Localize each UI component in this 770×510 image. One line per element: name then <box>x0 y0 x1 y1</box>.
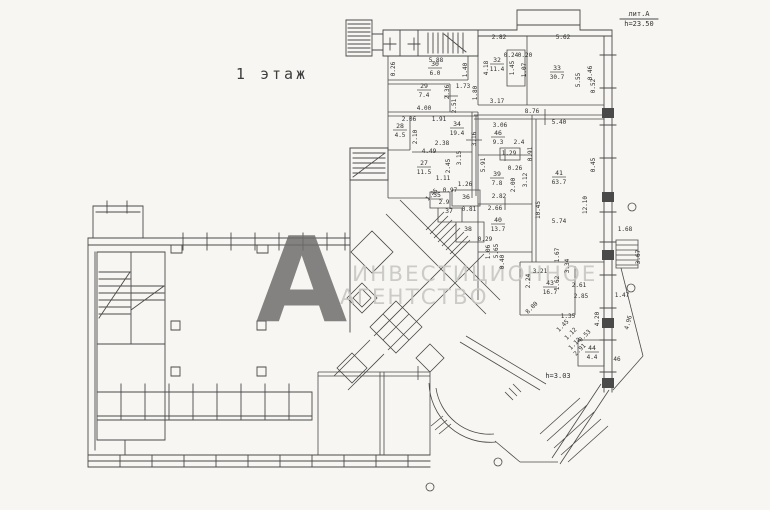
dim-label: 0.26 <box>390 61 397 76</box>
svg-text:11.5: 11.5 <box>417 169 432 176</box>
dim-label: 4.18 <box>483 60 490 75</box>
dim-label: 0.81 <box>462 206 477 213</box>
svg-text:38: 38 <box>464 225 472 233</box>
dim-label: 46 <box>613 356 621 363</box>
dim-label: 2.85 <box>574 293 589 300</box>
dim-label: 3.21 <box>533 268 548 275</box>
dim-label: 8.00 <box>524 300 539 315</box>
svg-text:6.0: 6.0 <box>430 70 441 77</box>
dim-label: 0.45 <box>590 157 597 172</box>
room-label-33: 3330.7 <box>550 64 565 81</box>
dim-label: 1.07 <box>521 62 528 77</box>
svg-text:34: 34 <box>453 120 461 128</box>
dim-label: 0.24 <box>504 52 519 59</box>
floor-plan-svg: А ИНВЕСТИЦИОННОЕ АГЕНТСТВО 1 этаж лит.А … <box>0 0 770 510</box>
dim-label: 5.74 <box>552 218 567 225</box>
dim-label: 0.52 <box>590 78 597 93</box>
dim-label: 1.62 <box>554 275 561 290</box>
dim-label: 2.00 <box>510 177 517 192</box>
svg-text:19.4: 19.4 <box>450 130 465 137</box>
dim-label: 5.88 <box>429 57 444 64</box>
dim-label: 5.55 <box>575 72 582 87</box>
room-label-38: 38 <box>464 225 472 233</box>
dim-label: 3.16 <box>471 131 478 146</box>
floor-title: 1 этаж <box>236 65 308 83</box>
svg-text:46: 46 <box>494 129 502 137</box>
svg-text:29: 29 <box>420 82 428 90</box>
room-label-44: 444.4 <box>585 344 599 361</box>
dim-label: 1.68 <box>618 226 633 233</box>
svg-text:28: 28 <box>396 122 404 130</box>
room-label-40: 4013.7 <box>491 216 506 233</box>
room-label-32: 3211.4 <box>490 56 505 73</box>
dim-label: 0.26 <box>508 165 523 172</box>
dim-label: 4.49 <box>422 148 437 155</box>
dim-label: 2.38 <box>435 140 450 147</box>
dim-label: 2.10 <box>412 129 419 144</box>
dim-label: 3.34 <box>564 258 571 273</box>
dim-label: 1.11 <box>436 175 451 182</box>
dim-label: 3.12 <box>522 172 529 187</box>
svg-text:2.9: 2.9 <box>439 199 450 206</box>
svg-text:44: 44 <box>588 344 596 352</box>
room-label-37: 37 <box>445 207 453 215</box>
svg-text:9.3: 9.3 <box>493 139 504 146</box>
dim-label: 0.20 <box>518 52 533 59</box>
dim-label: 4.20 <box>594 311 601 326</box>
dim-label: 1.91 <box>432 116 447 123</box>
svg-text:39: 39 <box>493 170 501 178</box>
room-label-46: 469.3 <box>491 129 505 146</box>
entry-height-label: h=3.03 <box>545 372 570 380</box>
svg-text:7.8: 7.8 <box>492 180 503 187</box>
dim-label: 5.62 <box>556 34 571 41</box>
svg-text:33: 33 <box>553 64 561 72</box>
column-marker <box>171 321 266 376</box>
svg-text:41: 41 <box>555 169 563 177</box>
dim-label: 5.91 <box>480 157 487 172</box>
dim-label: 3.15 <box>456 150 463 165</box>
watermark-logo: А <box>256 211 347 349</box>
dim-label: 1.06 <box>485 244 492 259</box>
dim-label: 1.40 <box>462 62 469 77</box>
dim-label: 1.26 <box>458 181 473 188</box>
room-label-28: 284.5 <box>393 122 407 139</box>
svg-text:40: 40 <box>494 216 502 224</box>
svg-text:27: 27 <box>420 159 428 167</box>
svg-text:13.7: 13.7 <box>491 226 506 233</box>
dim-label: 0.97 <box>443 187 458 194</box>
svg-text:63.7: 63.7 <box>552 179 567 186</box>
svg-text:7.4: 7.4 <box>419 92 430 99</box>
svg-text:11.4: 11.4 <box>490 66 505 73</box>
svg-text:4.5: 4.5 <box>395 132 406 139</box>
dim-label: 4.96 <box>623 314 634 330</box>
svg-text:37: 37 <box>445 207 453 215</box>
dim-label: 2.4 <box>514 139 525 146</box>
dim-label: 10.45 <box>535 201 542 219</box>
dim-label: 0.91 <box>527 146 534 161</box>
watermark-text-line2: АГЕНТСТВО <box>340 285 489 310</box>
dim-label: 1.29 <box>502 150 517 157</box>
dim-label: 2.61 <box>572 282 587 289</box>
room-label-39: 397.8 <box>490 170 504 187</box>
dim-label: 3.06 <box>493 122 508 129</box>
dim-label: 1.80 <box>472 85 479 100</box>
room-label-36: 36 <box>462 193 470 201</box>
dim-label: 1.73 <box>456 83 471 90</box>
dim-label: 2.06 <box>402 116 417 123</box>
dim-label: 1.47 <box>615 292 630 299</box>
dim-label: 1.67 <box>554 247 561 262</box>
dim-label: 5.40 <box>552 119 567 126</box>
room-label-41: 4163.7 <box>552 169 567 186</box>
svg-text:4.4: 4.4 <box>587 354 598 361</box>
dim-label: 2.82 <box>492 193 507 200</box>
room-label-29: 297.4 <box>417 82 431 99</box>
dim-label: 3.67 <box>635 249 642 264</box>
dim-label: 3.17 <box>490 98 505 105</box>
svg-text:36: 36 <box>462 193 470 201</box>
svg-text:43: 43 <box>546 279 554 287</box>
dim-label: 2.51 <box>451 98 458 113</box>
dim-label: 2.82 <box>492 34 507 41</box>
dim-label: 12.10 <box>582 196 589 214</box>
room-label-34: 3419.4 <box>450 120 465 137</box>
dim-label: 0.40 <box>499 254 506 269</box>
dim-label: 8.76 <box>525 108 540 115</box>
floor-plan-page: А ИНВЕСТИЦИОННОЕ АГЕНТСТВО 1 этаж лит.А … <box>0 0 770 510</box>
svg-text:32: 32 <box>493 56 501 64</box>
dim-label: 2.45 <box>445 158 452 173</box>
dim-label: 2.66 <box>488 205 503 212</box>
dim-label: 0.46 <box>587 65 594 80</box>
room-label-27: 2711.5 <box>417 159 432 176</box>
dim-label: 1.35 <box>561 313 576 320</box>
dim-label: 2.24 <box>525 273 532 288</box>
svg-text:30.7: 30.7 <box>550 74 565 81</box>
dim-label: 4.00 <box>417 105 432 112</box>
dim-label: 0.29 <box>478 236 493 243</box>
building-lit-label: лит.А <box>628 10 650 18</box>
dim-label: 2.36 <box>444 84 451 99</box>
building-height-label: h=23.50 <box>624 20 654 28</box>
dim-label: 1.45 <box>509 60 516 75</box>
